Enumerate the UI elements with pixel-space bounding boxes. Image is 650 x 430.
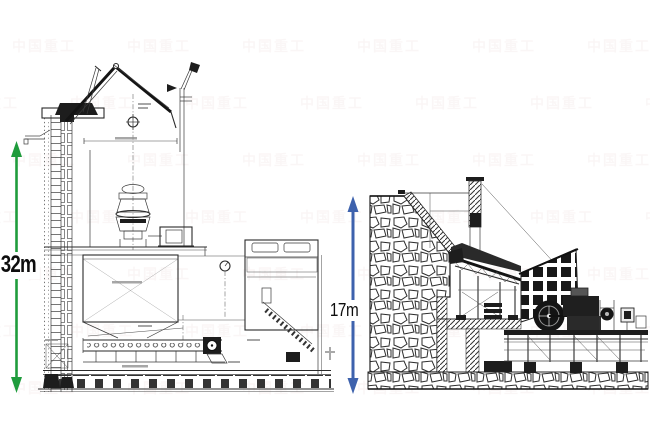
ground-foundation [368, 372, 648, 389]
technical-drawings [0, 0, 650, 430]
diagram-canvas: 中国重工中国重工中国重工中国重工中国重工中国重工中国重工中国重工中国重工中国重工… [0, 0, 650, 430]
walkway-hoist [220, 261, 230, 318]
left-height-label: 32m [0, 252, 40, 279]
drive-motor [158, 227, 194, 246]
cone-crusher [116, 185, 162, 248]
annex-building [245, 240, 322, 374]
roof-masts [167, 62, 200, 152]
crane-hook [126, 94, 140, 250]
drive-unit [563, 288, 646, 332]
right-drawing [325, 177, 648, 389]
stone-retaining-wall [370, 190, 521, 375]
vibrating-feeder [448, 243, 521, 320]
annotation-marks [45, 103, 260, 368]
building-walls [44, 150, 245, 320]
stairs [263, 302, 315, 362]
gray-corner-mark [325, 347, 335, 360]
right-height-dimension-arrow [348, 196, 359, 394]
right-height-label: 17m [329, 300, 363, 321]
discharge-conveyor [83, 337, 227, 363]
support-frame [504, 330, 648, 373]
left-drawing [24, 62, 334, 392]
